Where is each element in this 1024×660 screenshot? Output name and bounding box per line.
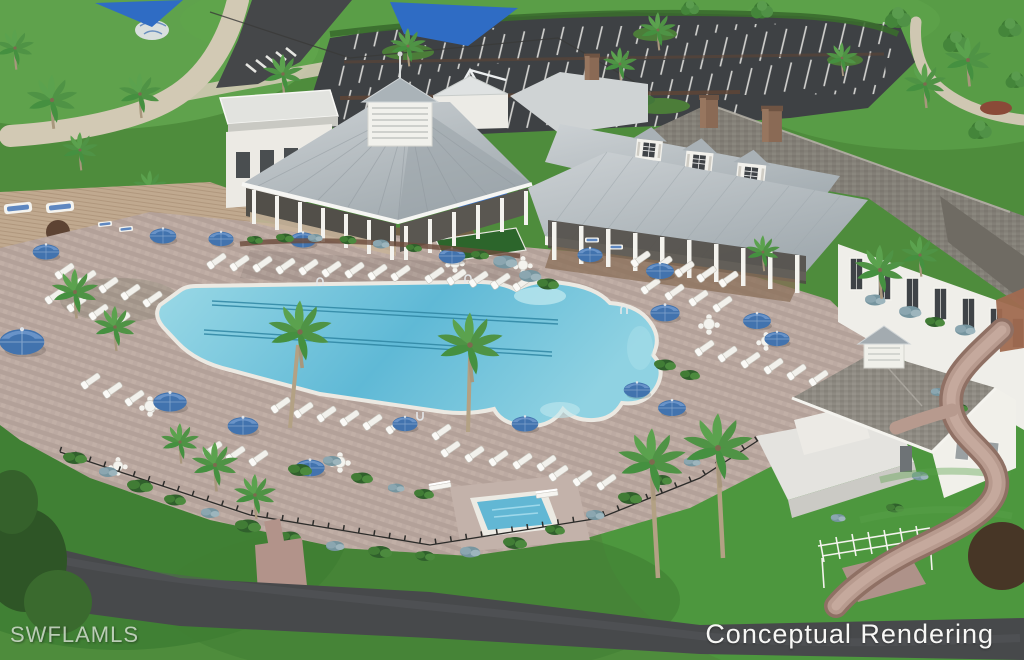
finial	[398, 52, 403, 57]
swim-shelf	[540, 402, 580, 418]
watermark: SWFLAMLS	[10, 622, 139, 648]
chimney	[761, 106, 783, 142]
chimney	[699, 95, 719, 128]
outdoor-chair	[609, 245, 623, 250]
rendering-canvas: SWFLAMLS Conceptual Rendering	[0, 0, 1024, 660]
chimney	[584, 54, 600, 80]
outdoor-chair	[585, 238, 599, 243]
flower-bed	[980, 101, 1012, 115]
aerial-rendering	[0, 0, 1024, 660]
caption-conceptual-rendering: Conceptual Rendering	[705, 619, 994, 650]
swim-shelf	[514, 287, 566, 305]
pool-house-door	[900, 446, 912, 472]
